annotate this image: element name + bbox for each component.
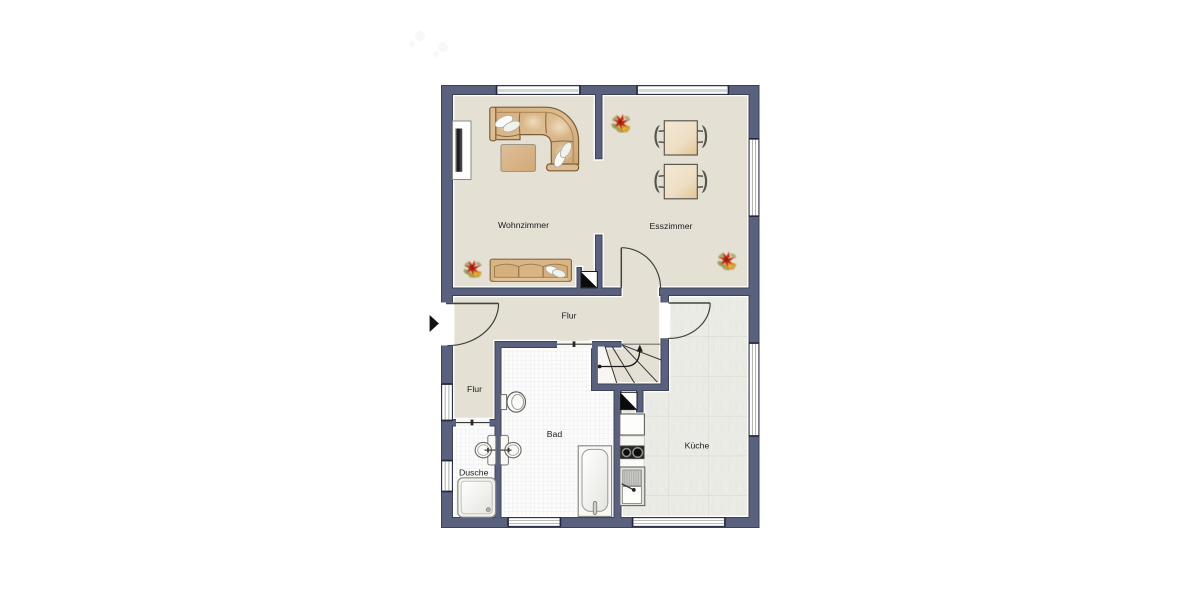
- svg-text:Esszimmer: Esszimmer: [650, 221, 693, 231]
- svg-text:Dusche: Dusche: [459, 468, 489, 478]
- svg-text:Küche: Küche: [685, 441, 710, 451]
- svg-text:Flur: Flur: [467, 384, 482, 394]
- svg-text:Wohnzimmer: Wohnzimmer: [498, 220, 549, 230]
- svg-text:Bad: Bad: [547, 429, 563, 439]
- svg-text:Flur: Flur: [562, 311, 577, 321]
